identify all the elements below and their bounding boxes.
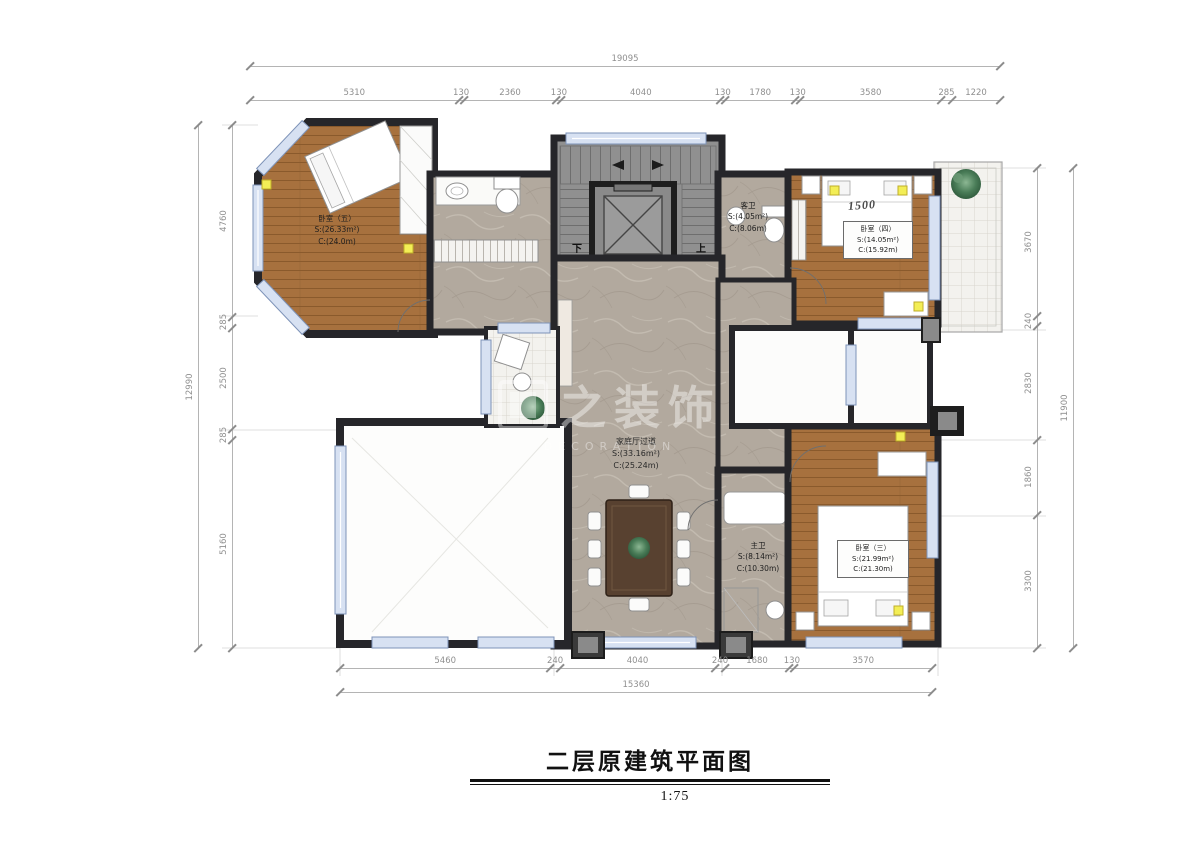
- dimension-mark: [250, 66, 1000, 67]
- dimension-label: 5160: [219, 533, 229, 555]
- bed-width-dimension: 1500: [848, 197, 877, 214]
- dimension-mark: [198, 125, 199, 648]
- dimension-mark: [1073, 168, 1074, 648]
- dimension-mark: [1037, 168, 1038, 648]
- room-label-bedroom5: 卧室（五） S:(26.33m²) C:(24.0m): [296, 213, 378, 247]
- dimension-label: 3580: [860, 88, 882, 99]
- plant-icon: [628, 537, 650, 559]
- drawing-scale: 1:75: [470, 789, 830, 805]
- balcony: [481, 323, 558, 426]
- dimension-label: 5310: [343, 88, 365, 99]
- sink: [766, 601, 784, 619]
- dimension-mark: [250, 100, 1000, 101]
- floorplan-sheet: 之装饰 DECORATION 卧室（五） S:(26.33m²) C:(24.0…: [0, 0, 1200, 848]
- dimension-mark: [340, 668, 932, 669]
- dimension-label: 285: [219, 426, 229, 442]
- window: [806, 637, 902, 648]
- dimension-label: 11900: [1060, 394, 1070, 421]
- drawing-title: 二层原建筑平面图: [470, 748, 830, 776]
- dimension-label: 19095: [611, 54, 638, 65]
- room-label-family-hall: 家庭厅过道 S:(33.16m²) C:(25.24m): [592, 436, 680, 472]
- dimension-label: 3570: [852, 656, 874, 667]
- toilet-tank: [494, 177, 520, 189]
- terrace: [934, 162, 1002, 332]
- dimension-label: 3300: [1024, 571, 1034, 593]
- toilet: [496, 189, 518, 213]
- sink: [446, 183, 468, 199]
- dimension-label: 2360: [499, 88, 521, 99]
- closet: [792, 200, 806, 260]
- room-bottom-left: [335, 422, 568, 648]
- nightstand: [802, 176, 820, 194]
- dimension-label: 1220: [965, 88, 987, 99]
- bathtub: [724, 492, 786, 524]
- title-block: 二层原建筑平面图 1:75: [470, 748, 830, 805]
- window: [372, 637, 448, 648]
- window: [478, 637, 554, 648]
- dimension-label: 1860: [1024, 467, 1034, 489]
- window: [927, 462, 938, 558]
- plant-icon: [521, 396, 545, 420]
- window: [858, 318, 922, 329]
- window: [929, 196, 940, 300]
- dimension-label: 4040: [630, 88, 652, 99]
- dimension-label: 2830: [1024, 372, 1034, 394]
- elevator: [592, 184, 674, 260]
- floorplan-drawing: [0, 0, 1200, 848]
- window: [498, 323, 550, 333]
- room-label-bedroom4: 卧室（四） S:(14.05m²) C:(15.92m): [843, 221, 913, 259]
- cabinet: [558, 300, 572, 386]
- dimension-mark: [232, 125, 233, 648]
- stool: [513, 373, 531, 391]
- dimension-label: 1780: [749, 88, 771, 99]
- stair-down-label: 下: [572, 240, 582, 255]
- window: [481, 340, 491, 414]
- room-label-master-bath: 主卫 S:(8.14m²) C:(10.30m): [722, 540, 794, 574]
- closet: [434, 240, 538, 262]
- dimension-label: 240: [1024, 313, 1034, 329]
- nightstand: [796, 612, 814, 630]
- nightstand: [912, 612, 930, 630]
- dimension-label: 5460: [434, 656, 456, 667]
- dimension-mark: [340, 692, 932, 693]
- title-underline: [470, 779, 830, 782]
- room-bedroom3: [788, 426, 938, 648]
- plant-icon: [951, 169, 981, 199]
- dimension-label: 12990: [185, 373, 195, 400]
- room-label-guest-bath: 客卫 S:(4.05m²) C:(8.06m): [712, 200, 784, 234]
- dimension-label: 285: [219, 314, 229, 330]
- stair-up-label: 上: [696, 240, 706, 255]
- desk: [878, 452, 926, 476]
- room-label-bedroom3: 卧室（三） S:(21.99m²) C:(21.30m): [837, 540, 909, 578]
- dimension-label: 15360: [622, 680, 649, 691]
- nightstand: [914, 176, 932, 194]
- dimension-label: 2500: [219, 368, 229, 390]
- dimension-label: 4760: [219, 210, 229, 232]
- dimension-label: 4040: [627, 656, 649, 667]
- dimension-label: 3670: [1024, 231, 1034, 253]
- dimension-label: 1680: [746, 656, 768, 667]
- window: [846, 345, 856, 405]
- title-underline-thin: [470, 784, 830, 785]
- room-middle-right: [732, 318, 930, 426]
